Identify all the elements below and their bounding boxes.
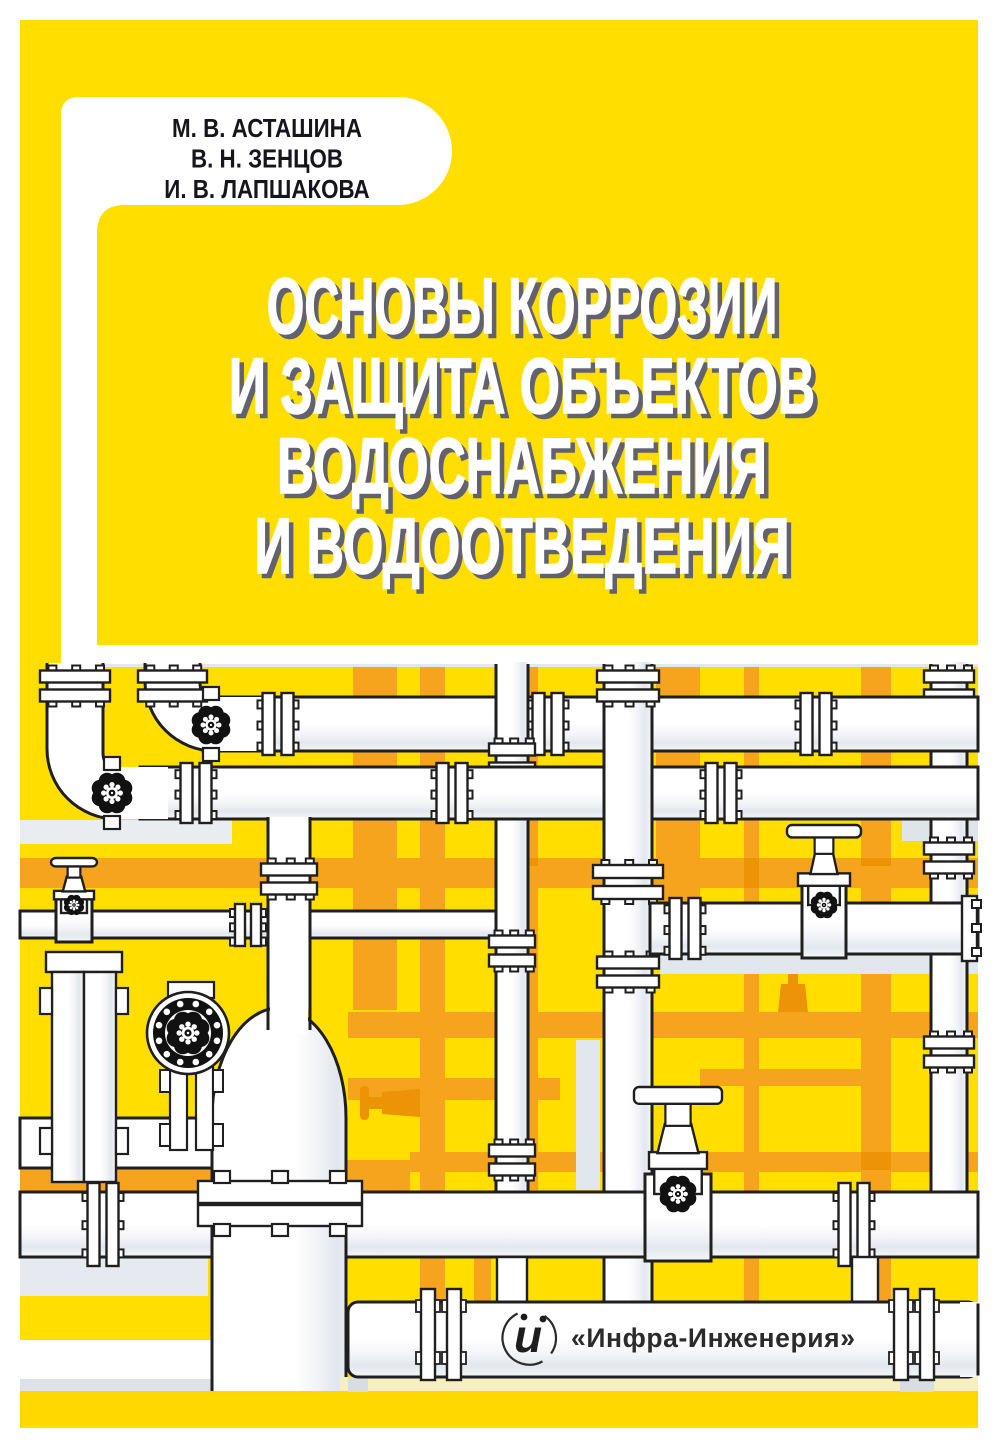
- svg-text:И ЗАЩИТА ОБЪЕКТОВ: И ЗАЩИТА ОБЪЕКТОВ: [229, 343, 815, 431]
- svg-text:И ВОДООТВЕДЕНИЯ: И ВОДООТВЕДЕНИЯ: [254, 502, 789, 591]
- svg-text:ВОДОСНАБЖЕНИЯ: ВОДОСНАБЖЕНИЯ: [277, 423, 767, 511]
- svg-text:и: и: [514, 1310, 542, 1362]
- svg-text:В. Н. ЗЕНЦОВ: В. Н. ЗЕНЦОВ: [191, 145, 343, 174]
- svg-text:ОСНОВЫ КОРРОЗИИ: ОСНОВЫ КОРРОЗИИ: [267, 262, 778, 350]
- svg-text:«Инфра-Инженерия»: «Инфра-Инженерия»: [571, 1323, 856, 1353]
- svg-text:И. В. ЛАПШАКОВА: И. В. ЛАПШАКОВА: [164, 175, 369, 204]
- svg-text:М. В. АСТАШИНА: М. В. АСТАШИНА: [172, 114, 362, 143]
